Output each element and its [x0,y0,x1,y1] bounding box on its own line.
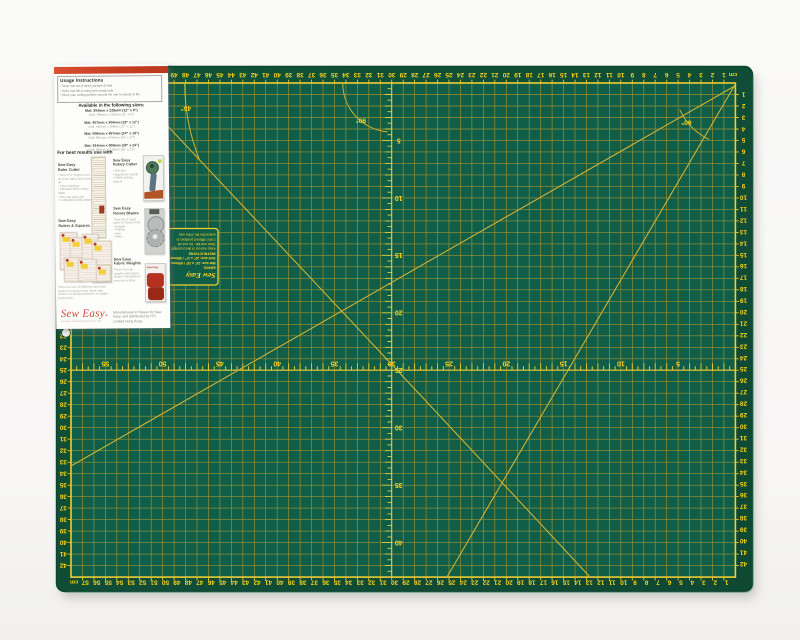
svg-text:30: 30 [395,424,403,431]
svg-text:32: 32 [368,579,376,586]
svg-text:9: 9 [741,182,745,189]
svg-text:extend the life of the mat.: extend the life of the mat. [178,233,215,237]
svg-text:22: 22 [479,71,487,78]
svg-text:33: 33 [59,458,67,465]
svg-text:27: 27 [422,71,430,78]
svg-text:12: 12 [594,71,602,78]
svg-text:26: 26 [59,378,67,385]
svg-text:43: 43 [242,579,250,586]
svg-text:90°: 90° [356,117,367,125]
svg-text:16: 16 [551,579,559,586]
svg-text:15: 15 [740,251,748,258]
svg-text:56: 56 [93,579,101,586]
svg-text:29: 29 [402,579,410,586]
svg-text:36: 36 [322,579,330,586]
svg-text:29: 29 [399,71,407,78]
svg-text:40: 40 [276,579,284,586]
svg-text:37: 37 [59,504,67,511]
svg-text:44: 44 [230,579,238,586]
svg-text:20: 20 [502,71,510,78]
svg-text:27: 27 [740,388,748,395]
svg-text:49: 49 [170,71,178,78]
svg-text:7: 7 [656,579,660,586]
svg-text:23: 23 [471,579,479,586]
svg-text:EM4001: EM4001 [203,266,215,270]
svg-text:9: 9 [630,71,634,78]
svg-text:39: 39 [288,579,296,586]
svg-text:14: 14 [571,71,579,78]
svg-text:30: 30 [740,423,748,430]
svg-text:40: 40 [59,539,67,546]
svg-text:38: 38 [299,579,307,586]
svg-text:INSTRUCTIONS: INSTRUCTIONS [188,251,216,255]
svg-text:25: 25 [445,71,453,78]
svg-text:38: 38 [59,516,67,523]
svg-text:30: 30 [59,424,67,431]
svg-text:45: 45 [216,359,224,366]
svg-text:20: 20 [740,308,748,315]
svg-text:55: 55 [104,579,112,586]
svg-text:18: 18 [528,579,536,586]
svg-text:25: 25 [448,579,456,586]
svg-text:6: 6 [741,148,745,155]
svg-text:4: 4 [690,579,694,586]
svg-text:35: 35 [395,481,403,488]
svg-text:24: 24 [459,579,467,586]
svg-text:34: 34 [345,579,353,586]
svg-text:22: 22 [740,331,748,338]
svg-text:33: 33 [740,457,748,464]
svg-text:4: 4 [741,125,745,132]
svg-text:31: 31 [59,435,67,442]
svg-text:37: 37 [740,503,748,510]
svg-text:8: 8 [644,579,648,586]
svg-text:45°: 45° [181,105,192,113]
svg-text:13: 13 [740,228,748,235]
svg-text:39: 39 [740,526,748,533]
svg-text:cm: cm [70,579,78,585]
svg-text:19: 19 [517,579,525,586]
svg-text:32: 32 [365,71,373,78]
svg-text:1: 1 [722,71,726,78]
svg-text:5: 5 [741,136,745,143]
svg-text:1: 1 [741,91,745,98]
svg-text:24: 24 [59,355,67,362]
svg-text:5: 5 [676,359,680,366]
svg-text:34: 34 [342,71,350,78]
svg-text:8: 8 [741,171,745,178]
svg-text:21: 21 [491,71,499,78]
svg-text:18: 18 [525,71,533,78]
svg-text:36: 36 [740,491,748,498]
svg-text:12: 12 [597,579,605,586]
svg-text:32: 32 [740,445,748,452]
svg-text:21: 21 [494,579,502,586]
svg-text:28: 28 [59,401,67,408]
svg-text:49: 49 [173,579,181,586]
svg-text:35: 35 [333,579,341,586]
svg-text:19: 19 [740,297,748,304]
svg-text:20: 20 [395,309,403,316]
svg-text:46: 46 [207,579,215,586]
svg-text:20: 20 [502,359,510,366]
svg-text:10: 10 [617,71,625,78]
svg-text:31: 31 [376,71,384,78]
svg-text:39: 39 [285,71,293,78]
svg-text:44: 44 [227,71,235,78]
svg-text:29: 29 [59,412,67,419]
svg-text:60°: 60° [681,119,692,127]
svg-text:24: 24 [740,354,748,361]
svg-text:45: 45 [219,579,227,586]
svg-text:35: 35 [59,481,67,488]
svg-text:54: 54 [116,579,124,586]
svg-text:35: 35 [740,480,748,487]
svg-text:39: 39 [59,527,67,534]
svg-text:28: 28 [740,400,748,407]
svg-text:55: 55 [101,359,109,366]
svg-text:7: 7 [653,71,657,78]
svg-text:50: 50 [162,579,170,586]
svg-text:48: 48 [182,71,190,78]
svg-text:52: 52 [139,579,147,586]
svg-text:36: 36 [59,493,67,500]
svg-text:5: 5 [676,71,680,78]
svg-text:15: 15 [562,579,570,586]
svg-text:15: 15 [560,71,568,78]
svg-text:32: 32 [59,447,67,454]
svg-text:27: 27 [59,389,67,396]
svg-text:34: 34 [59,470,67,477]
svg-text:2: 2 [710,71,714,78]
svg-text:4: 4 [687,71,691,78]
svg-text:12: 12 [740,216,748,223]
svg-text:40: 40 [740,537,748,544]
svg-text:14: 14 [740,239,748,246]
svg-text:19: 19 [514,71,522,78]
svg-text:13: 13 [583,71,591,78]
svg-text:10: 10 [395,194,403,201]
svg-text:15: 15 [395,251,403,258]
svg-text:27: 27 [425,579,433,586]
svg-text:51: 51 [150,579,158,586]
svg-text:1: 1 [725,579,729,586]
svg-text:42: 42 [253,579,261,586]
svg-text:11: 11 [606,71,613,78]
svg-text:23: 23 [740,342,748,349]
svg-text:11: 11 [740,205,747,212]
svg-text:35: 35 [331,71,339,78]
svg-text:Sew Easy: Sew Easy [185,271,215,280]
svg-text:31: 31 [379,579,387,586]
svg-text:25: 25 [59,366,67,373]
svg-text:Store mat flat - Do not roll.: Store mat flat - Do not roll. [177,242,216,246]
svg-text:2: 2 [741,102,745,109]
svg-text:22: 22 [482,579,490,586]
svg-text:14: 14 [574,579,582,586]
svg-text:15: 15 [560,359,568,366]
svg-text:33: 33 [353,71,361,78]
svg-text:45: 45 [216,71,224,78]
svg-text:23: 23 [468,71,476,78]
svg-text:30: 30 [391,579,399,586]
svg-text:46: 46 [205,71,213,78]
svg-text:20: 20 [505,579,513,586]
svg-text:29: 29 [740,411,748,418]
svg-text:40: 40 [395,539,403,546]
svg-text:40: 40 [273,359,281,366]
svg-text:17: 17 [537,71,545,78]
svg-text:25: 25 [740,365,748,372]
svg-text:Cut in different positions to: Cut in different positions to [176,237,215,241]
svg-text:23: 23 [59,343,67,350]
svg-text:8: 8 [642,71,646,78]
svg-text:37: 37 [310,579,318,586]
svg-text:cm: cm [729,71,737,77]
svg-text:5: 5 [397,136,401,143]
svg-text:6: 6 [665,71,669,78]
svg-text:53: 53 [127,579,135,586]
svg-text:40: 40 [273,71,281,78]
svg-text:41: 41 [740,549,748,556]
svg-text:26: 26 [740,377,748,384]
svg-text:43: 43 [239,71,247,78]
svg-text:13: 13 [585,579,593,586]
svg-text:28: 28 [414,579,422,586]
svg-text:31: 31 [740,434,748,441]
svg-text:17: 17 [740,274,748,281]
svg-text:28: 28 [411,71,419,78]
svg-text:30: 30 [388,359,396,366]
svg-text:2: 2 [713,579,717,586]
svg-text:3: 3 [741,113,745,120]
svg-text:6: 6 [667,579,671,586]
svg-text:42: 42 [250,71,258,78]
svg-text:11: 11 [608,579,615,586]
svg-text:57: 57 [81,579,89,586]
svg-text:Keep mat out of direct sunligh: Keep mat out of direct sunlight. [170,247,216,251]
svg-text:24: 24 [457,71,465,78]
svg-text:47: 47 [196,579,204,586]
svg-text:9: 9 [633,579,637,586]
svg-text:50: 50 [159,359,167,366]
svg-text:48: 48 [184,579,192,586]
svg-text:26: 26 [434,71,442,78]
svg-text:10: 10 [620,579,628,586]
svg-text:41: 41 [59,550,67,557]
svg-text:38: 38 [296,71,304,78]
svg-text:30: 30 [388,71,396,78]
svg-text:26: 26 [436,579,444,586]
svg-text:10: 10 [740,194,748,201]
svg-text:34: 34 [740,468,748,475]
svg-text:33: 33 [356,579,364,586]
svg-text:10: 10 [617,359,625,366]
svg-text:3: 3 [699,71,703,78]
svg-text:21: 21 [740,319,748,326]
svg-text:16: 16 [740,262,748,269]
svg-text:7: 7 [741,159,745,166]
svg-text:41: 41 [262,71,270,78]
svg-text:42: 42 [740,560,748,567]
svg-text:47: 47 [193,71,201,78]
svg-text:36: 36 [319,71,327,78]
svg-text:35: 35 [331,359,339,366]
svg-text:16: 16 [548,71,556,78]
svg-text:18: 18 [740,285,748,292]
svg-text:25: 25 [445,359,453,366]
svg-text:41: 41 [265,579,273,586]
svg-text:37: 37 [308,71,316,78]
svg-text:5: 5 [679,579,683,586]
svg-text:38: 38 [740,514,748,521]
svg-text:17: 17 [540,579,548,586]
svg-text:3: 3 [702,579,706,586]
svg-text:42: 42 [59,562,67,569]
